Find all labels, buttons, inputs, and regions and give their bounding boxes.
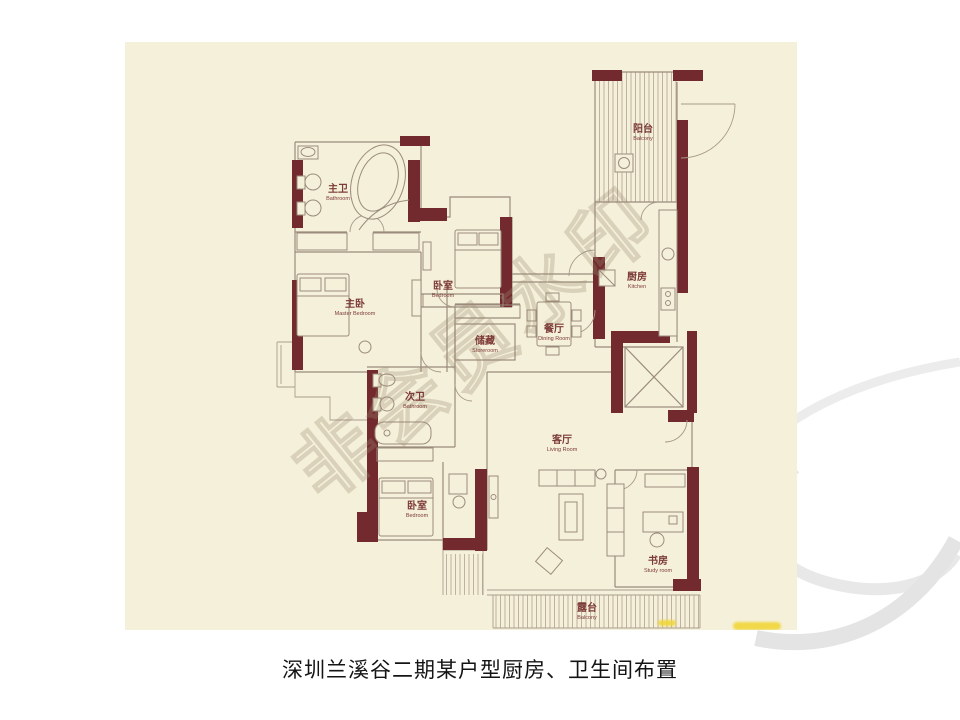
master-bed bbox=[297, 274, 349, 336]
svg-text:Balcony: Balcony bbox=[577, 615, 597, 621]
hall-living-door bbox=[665, 420, 687, 442]
svg-text:储藏: 储藏 bbox=[474, 334, 495, 347]
bathtub bbox=[342, 138, 415, 226]
small-balcony-floor bbox=[443, 554, 483, 595]
slide-background: 非会员水印 主卫 Bathroom 主卧 Master Bedroom 卧室 B… bbox=[0, 0, 960, 720]
svg-text:Living Room: Living Room bbox=[547, 447, 578, 453]
svg-text:Bedroom: Bedroom bbox=[406, 513, 429, 519]
room-label-bathroom2: 次卫 Bathroom bbox=[403, 390, 427, 410]
svg-text:Balcony: Balcony bbox=[633, 136, 653, 142]
small-desk bbox=[449, 474, 467, 494]
svg-text:客厅: 客厅 bbox=[551, 433, 572, 446]
tv-cabinet bbox=[412, 280, 421, 316]
svg-text:Study room: Study room bbox=[644, 568, 673, 574]
floor-plan-image: 非会员水印 主卫 Bathroom 主卧 Master Bedroom 卧室 B… bbox=[125, 42, 797, 630]
svg-text:Master Bedroom: Master Bedroom bbox=[335, 311, 376, 317]
room-label-study: 书房 Study room bbox=[644, 554, 673, 574]
svg-text:阳台: 阳台 bbox=[633, 122, 653, 135]
furniture-master-bathroom bbox=[297, 138, 414, 230]
room-label-terrace: 露台 Balcony bbox=[577, 601, 597, 621]
svg-text:厨房: 厨房 bbox=[627, 270, 647, 283]
svg-text:主卫: 主卫 bbox=[328, 182, 348, 195]
side-table bbox=[596, 469, 606, 479]
svg-text:卧室: 卧室 bbox=[407, 499, 427, 512]
room-label-storeroom: 储藏 Storeroom bbox=[472, 334, 498, 354]
svg-text:Bathroom: Bathroom bbox=[403, 404, 427, 410]
tv-stand bbox=[489, 476, 498, 518]
top-right-entry-door bbox=[681, 104, 735, 158]
toilet bbox=[305, 174, 321, 190]
svg-text:书房: 书房 bbox=[648, 554, 668, 567]
sofa-3seat bbox=[539, 470, 595, 486]
svg-text:Bedroom: Bedroom bbox=[432, 293, 455, 299]
svg-text:卧室: 卧室 bbox=[433, 279, 453, 292]
room-label-balcony-top: 阳台 Balcony bbox=[633, 122, 653, 142]
dresser bbox=[423, 242, 431, 270]
swirl-arc-top bbox=[772, 362, 960, 436]
slide-caption: 深圳兰溪谷二期某户型厨房、卫生间布置 bbox=[0, 654, 960, 684]
small-chair bbox=[453, 496, 465, 508]
chair bbox=[572, 326, 581, 337]
wardrobe-left bbox=[297, 233, 347, 250]
svg-text:Storeroom: Storeroom bbox=[472, 348, 498, 354]
armchair bbox=[536, 548, 563, 575]
sofa-chaise bbox=[607, 484, 624, 556]
bidet bbox=[305, 200, 321, 216]
room-label-bedroom-top: 卧室 Bedroom bbox=[432, 279, 455, 299]
stool bbox=[359, 341, 371, 353]
toilet-tank bbox=[297, 176, 305, 189]
svg-text:露台: 露台 bbox=[577, 601, 597, 614]
furniture-living bbox=[489, 469, 624, 574]
room-label-master-bathroom: 主卫 Bathroom bbox=[326, 182, 350, 202]
svg-text:Kitchen: Kitchen bbox=[628, 284, 646, 290]
study-shelf bbox=[645, 474, 685, 487]
svg-text:次卫: 次卫 bbox=[405, 390, 425, 403]
furniture-study bbox=[643, 512, 683, 547]
desk-chair bbox=[650, 533, 664, 547]
coffee-table bbox=[559, 494, 583, 540]
svg-text:主卧: 主卧 bbox=[345, 297, 365, 310]
room-label-living-room: 客厅 Living Room bbox=[547, 433, 578, 453]
floor-plan-svg: 非会员水印 主卫 Bathroom 主卧 Master Bedroom 卧室 B… bbox=[125, 42, 797, 630]
room-label-bedroom-bottom: 卧室 Bedroom bbox=[406, 499, 429, 519]
room-label-kitchen: 厨房 Kitchen bbox=[627, 270, 647, 290]
svg-text:Bathroom: Bathroom bbox=[326, 196, 350, 202]
svg-text:Dining Room: Dining Room bbox=[538, 336, 570, 342]
chair bbox=[546, 347, 559, 355]
svg-text:餐厅: 餐厅 bbox=[543, 322, 564, 335]
wardrobe-right bbox=[373, 233, 419, 250]
